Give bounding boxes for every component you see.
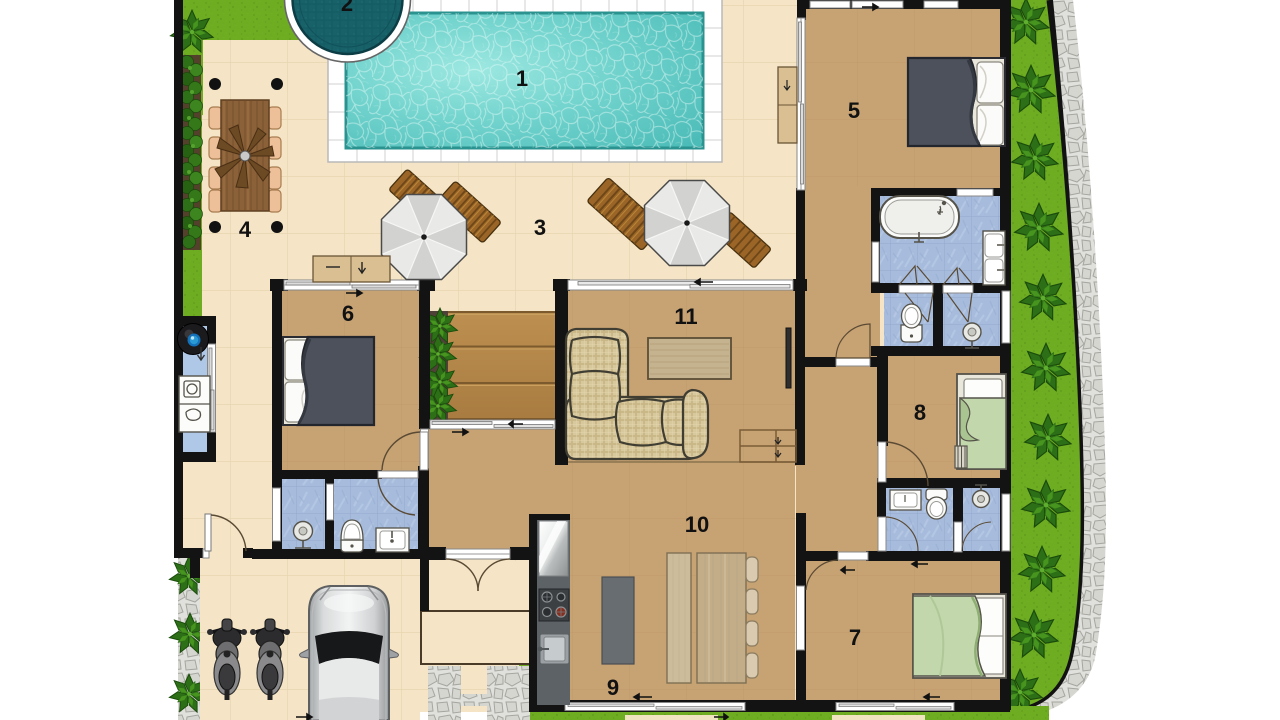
svg-text:6: 6 (342, 301, 354, 326)
svg-text:10: 10 (685, 512, 709, 537)
svg-text:4: 4 (239, 217, 252, 242)
svg-text:11: 11 (674, 304, 697, 329)
svg-text:8: 8 (914, 400, 926, 425)
svg-text:9: 9 (607, 675, 619, 700)
svg-text:3: 3 (534, 215, 546, 240)
svg-text:1: 1 (516, 66, 528, 91)
svg-text:5: 5 (848, 98, 860, 123)
svg-text:2: 2 (341, 0, 353, 16)
svg-text:7: 7 (849, 625, 861, 650)
